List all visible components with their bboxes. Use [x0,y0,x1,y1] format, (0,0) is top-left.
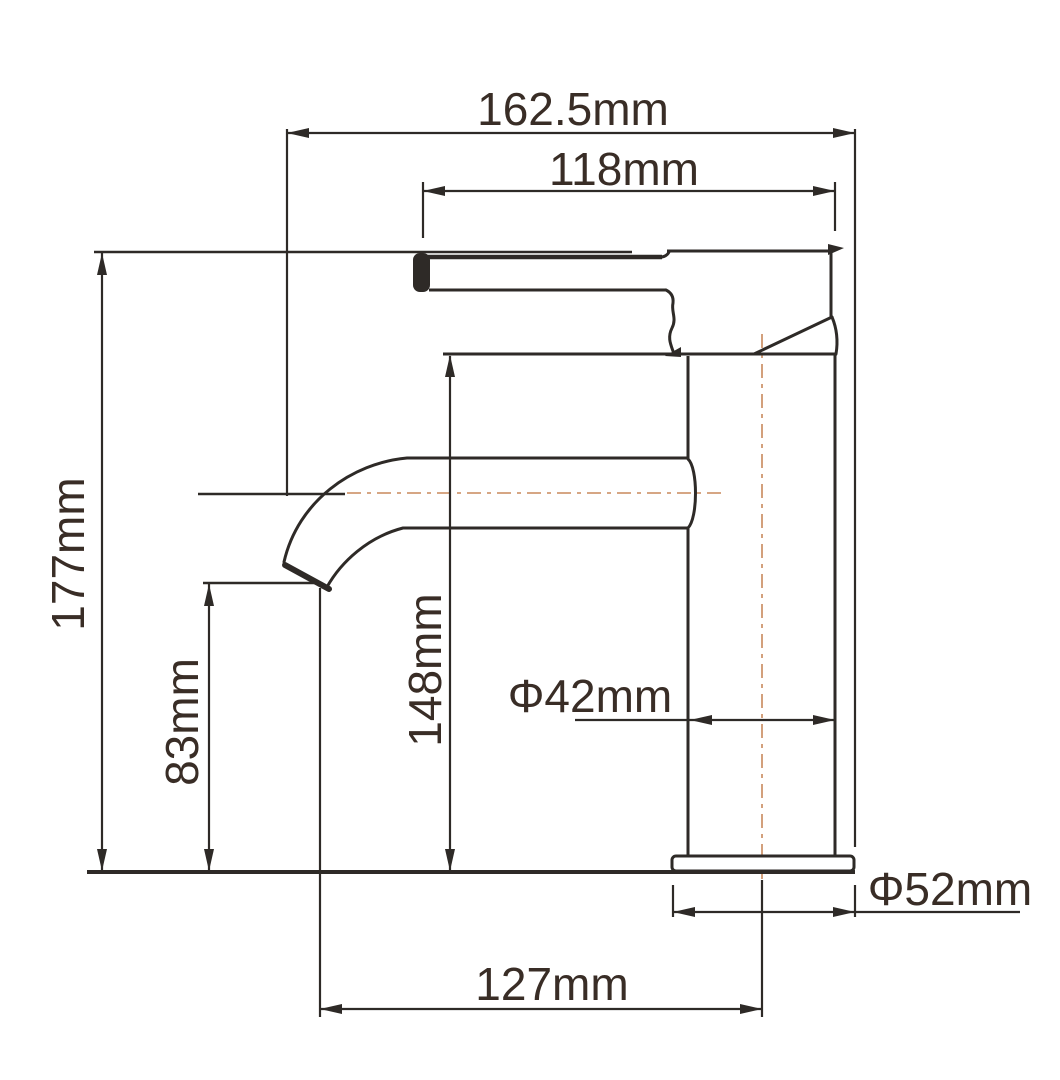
arrow-down-icon [204,849,214,871]
arrow-left-icon [423,186,445,196]
base-flange [672,856,854,871]
spout-outlet-face [285,565,329,589]
spout-reach-label: 127mm [475,958,628,1010]
handle-corner-joint-mark [828,244,844,255]
handle-lever-step [662,252,669,257]
spout-top-edge [284,458,688,562]
arrow-up-icon [97,253,107,275]
handle-base-underside-edge [754,317,832,354]
handle-length-label: 118mm [549,143,699,195]
arrow-down-icon [97,849,107,871]
arrow-right-icon [833,128,855,138]
arrow-left-icon [673,907,695,917]
base-diameter-label: Φ52mm [868,863,1033,915]
spout-bottom-edge [327,528,688,587]
handle-lever-back-joint [666,290,674,354]
overall-height-label: 177mm [42,477,94,630]
arrow-up-icon [204,584,214,606]
body-diameter-label: Φ42mm [508,670,673,722]
overall-width-label: 162.5mm [477,83,669,135]
arrow-left-icon [690,715,712,725]
handle-base-corner-arc [832,317,837,354]
arrow-left-icon [287,128,309,138]
arrow-right-icon [833,907,855,917]
arrow-down-icon [445,849,455,871]
arrow-right-icon [813,715,835,725]
arrow-left-icon [320,1004,342,1014]
faucet-technical-drawing: 162.5mm 118mm 177mm 83mm 148mm Φ42mm Φ52… [0,0,1060,1080]
arrow-right-icon [740,1004,762,1014]
arrow-up-icon [445,355,455,377]
spout-top-height-label: 148mm [399,593,451,746]
spout-outlet-height-label: 83mm [156,658,208,786]
arrow-right-icon [813,186,835,196]
